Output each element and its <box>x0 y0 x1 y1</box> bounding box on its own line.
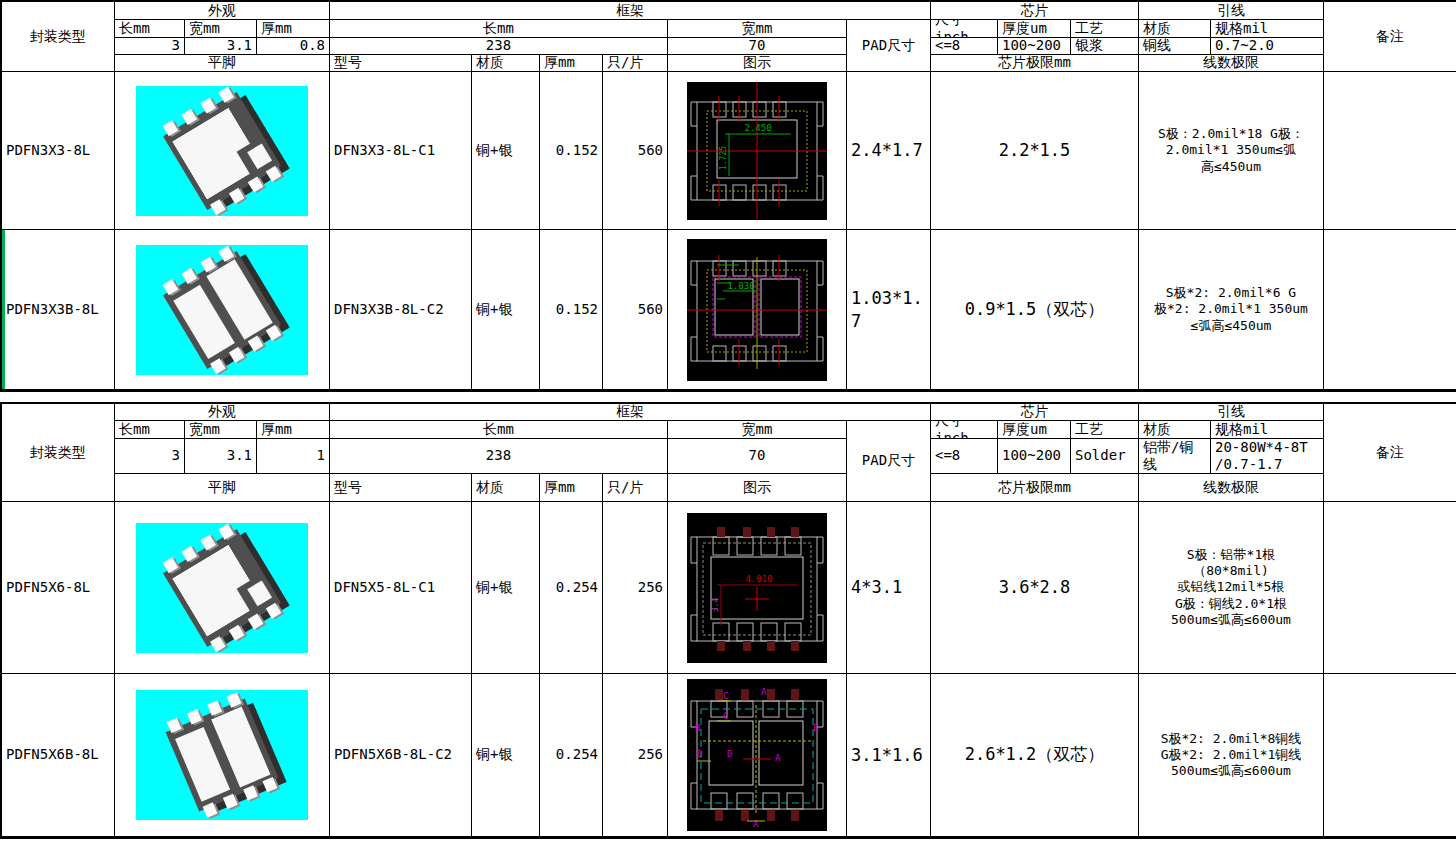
chip-size-label: 尺寸inch <box>931 421 998 439</box>
appearance-width-label: 宽mm <box>185 20 257 38</box>
model-header: 型号 <box>330 55 472 72</box>
diagram-label: B <box>813 723 818 733</box>
remark-header: 备注 <box>1324 2 1456 72</box>
appearance-width-label: 宽mm <box>185 421 257 439</box>
chip-limit-cell: 0.9*1.5（双芯） <box>931 230 1139 390</box>
pad-size-cell: 1.03*1.7 <box>847 230 931 390</box>
frame-length-value: 238 <box>330 38 668 55</box>
chip-process-label: 工艺 <box>1071 421 1139 439</box>
appearance-header: 外观 <box>115 2 330 20</box>
appearance-thick-value: 1 <box>257 439 330 474</box>
material-cell: 铜+银 <box>472 230 540 390</box>
thickness-cell: 0.152 <box>540 72 603 230</box>
model-cell: DFN5X5-8L-C1 <box>330 502 472 674</box>
diagram-label: A <box>761 687 767 697</box>
per-sheet-cell: 256 <box>603 674 668 837</box>
chip-header: 芯片 <box>931 404 1139 421</box>
frame-width-label: 宽mm <box>668 20 847 38</box>
package-photo <box>136 86 308 216</box>
diagram-label: B <box>695 723 700 733</box>
package-photo <box>136 690 308 820</box>
chip-limit-cell: 3.6*2.8 <box>931 502 1139 674</box>
package-type-cell: PDFN5X6-8L <box>2 502 115 674</box>
leadframe-diagram: 1.030 <box>687 239 827 381</box>
chip-thick-label: 厚度um <box>998 421 1071 439</box>
diagram-dim-h: 4.010 <box>745 574 772 584</box>
appearance-length-value: 3 <box>115 439 185 474</box>
leadframe-diagram-cell: C A C B B D D A A <box>668 674 847 837</box>
chip-size-value: <=8 <box>931 439 998 474</box>
per-sheet-cell: 560 <box>603 230 668 390</box>
material-cell: 铜+银 <box>472 502 540 674</box>
diagram-label: C <box>723 691 728 701</box>
leadframe-diagram-cell: 4.010 3.4 <box>668 502 847 674</box>
chip-size-label: 尺寸inch <box>931 20 998 38</box>
diagram-dim-v: 1.725 <box>719 145 728 169</box>
thickness-header: 厚mm <box>540 474 603 502</box>
wire-material-label: 材质 <box>1139 20 1211 38</box>
appearance-length-label: 长mm <box>115 20 185 38</box>
frame-width-value: 70 <box>668 439 847 474</box>
model-cell: PDFN5X6B-8L-C2 <box>330 674 472 837</box>
chip-process-value: 银浆 <box>1071 38 1139 55</box>
thickness-cell: 0.254 <box>540 502 603 674</box>
appearance-header: 外观 <box>115 404 330 421</box>
package-photo-cell <box>115 230 330 390</box>
chip-limit-header: 芯片极限mm <box>931 55 1139 72</box>
wire-header: 引线 <box>1139 404 1324 421</box>
frame-length-value: 238 <box>330 439 668 474</box>
chip-process-label: 工艺 <box>1071 20 1139 38</box>
leadframe-diagram: 2.450 1.725 <box>687 82 827 220</box>
wire-limit-cell: S极*2: 2.0mil*8铜线 G极*2: 2.0mil*1铜线 500um≤… <box>1139 674 1324 837</box>
wire-spec-label: 规格mil <box>1211 20 1324 38</box>
chip-thick-value: 100~200 <box>998 38 1071 55</box>
frame-width-label: 宽mm <box>668 421 847 439</box>
pad-size-header: PAD尺寸 <box>847 421 931 502</box>
remark-cell <box>1324 502 1456 674</box>
chip-limit-cell: 2.6*1.2（双芯） <box>931 674 1139 837</box>
chip-thick-label: 厚度um <box>998 20 1071 38</box>
package-photo-cell <box>115 72 330 230</box>
model-cell: DFN3X3B-8L-C2 <box>330 230 472 390</box>
pad-size-header: PAD尺寸 <box>847 20 931 72</box>
appearance-thick-value: 0.8 <box>257 38 330 55</box>
diagram-label: C <box>723 711 728 721</box>
remark-cell <box>1324 230 1456 390</box>
remark-header: 备注 <box>1324 404 1456 502</box>
per-sheet-header: 只/片 <box>603 474 668 502</box>
thickness-cell: 0.152 <box>540 230 603 390</box>
wire-spec-value: 20-80W*4-8T /0.7-1.7 <box>1211 439 1324 474</box>
diagram-label: D <box>697 749 702 759</box>
leadframe-diagram: 4.010 3.4 <box>687 513 827 663</box>
material-header: 材质 <box>472 474 540 502</box>
package-type-cell: PDFN5X6B-8L <box>2 674 115 837</box>
frame-header: 框架 <box>330 404 931 421</box>
frame-header: 框架 <box>330 2 931 20</box>
diagram-dim-v: 3.4 <box>711 597 720 612</box>
thickness-header: 厚mm <box>540 55 603 72</box>
diagram-header: 图示 <box>668 55 847 72</box>
package-type-header: 封装类型 <box>2 404 115 502</box>
chip-limit-cell: 2.2*1.5 <box>931 72 1139 230</box>
chip-size-value: <=8 <box>931 38 998 55</box>
frame-length-label: 长mm <box>330 421 668 439</box>
per-sheet-header: 只/片 <box>603 55 668 72</box>
flat-foot-header: 平脚 <box>115 474 330 502</box>
package-type-cell: PDFN3X3B-8L <box>2 230 115 390</box>
remark-cell <box>1324 72 1456 230</box>
wire-limit-cell: S极：2.0mil*18 G极： 2.0mil*1 350um≤弧 高≤450u… <box>1139 72 1324 230</box>
package-spec-table-1: 封装类型 外观 框架 芯片 引线 备注 长mm 宽mm 厚mm 长mm 宽mm … <box>0 0 1456 392</box>
pad-size-cell: 3.1*1.6 <box>847 674 931 837</box>
leadframe-diagram: C A C B B D D A A <box>687 679 827 831</box>
wire-spec-value: 0.7~2.0 <box>1211 38 1324 55</box>
sheet-bottom-margin <box>0 839 1456 847</box>
package-type-header: 封装类型 <box>2 2 115 72</box>
model-header: 型号 <box>330 474 472 502</box>
chip-limit-header: 芯片极限mm <box>931 474 1139 502</box>
chip-process-value: Solder <box>1071 439 1139 474</box>
material-cell: 铜+银 <box>472 72 540 230</box>
wire-material-value: 铜线 <box>1139 38 1211 55</box>
frame-width-value: 70 <box>668 38 847 55</box>
leadframe-diagram-cell: 1.030 <box>668 230 847 390</box>
wire-limit-cell: S极*2: 2.0mil*6 G 极*2: 2.0mil*1 350um ≤弧高… <box>1139 230 1324 390</box>
material-cell: 铜+银 <box>472 674 540 837</box>
wire-limit-cell: S极：铝带*1根 （80*8mil) 或铝线12mil*5根 G极：铜线2.0*… <box>1139 502 1324 674</box>
package-photo-cell <box>115 674 330 837</box>
appearance-length-label: 长mm <box>115 421 185 439</box>
wire-material-value: 铝带/铜线 <box>1139 439 1211 474</box>
package-type-cell: PDFN3X3-8L <box>2 72 115 230</box>
per-sheet-cell: 256 <box>603 502 668 674</box>
appearance-width-value: 3.1 <box>185 38 257 55</box>
appearance-width-value: 3.1 <box>185 439 257 474</box>
diagram-dim-h: 2.450 <box>744 123 771 133</box>
wire-limit-header: 线数极限 <box>1139 474 1324 502</box>
model-cell: DFN3X3-8L-C1 <box>330 72 472 230</box>
table-separator <box>0 392 1456 402</box>
wire-limit-header: 线数极限 <box>1139 55 1324 72</box>
pad-size-cell: 2.4*1.7 <box>847 72 931 230</box>
wire-material-label: 材质 <box>1139 421 1211 439</box>
thickness-cell: 0.254 <box>540 674 603 837</box>
leadframe-diagram-cell: 2.450 1.725 <box>668 72 847 230</box>
package-photo <box>136 523 308 653</box>
appearance-length-value: 3 <box>115 38 185 55</box>
package-photo <box>136 245 308 375</box>
package-spec-table-2: 封装类型 外观 框架 芯片 引线 备注 长mm 宽mm 厚mm 长mm 宽mm … <box>0 402 1456 839</box>
diagram-header: 图示 <box>668 474 847 502</box>
diagram-dim-h: 1.030 <box>727 281 754 291</box>
wire-spec-label: 规格mil <box>1211 421 1324 439</box>
remark-cell <box>1324 674 1456 837</box>
package-photo-cell <box>115 502 330 674</box>
per-sheet-cell: 560 <box>603 72 668 230</box>
chip-thick-value: 100~200 <box>998 439 1071 474</box>
frame-length-label: 长mm <box>330 20 668 38</box>
appearance-thick-label: 厚mm <box>257 20 330 38</box>
pad-size-cell: 4*3.1 <box>847 502 931 674</box>
flat-foot-header: 平脚 <box>115 55 330 72</box>
wire-header: 引线 <box>1139 2 1324 20</box>
chip-header: 芯片 <box>931 2 1139 20</box>
diagram-label: A <box>775 753 781 763</box>
diagram-label: D <box>727 749 732 759</box>
material-header: 材质 <box>472 55 540 72</box>
appearance-thick-label: 厚mm <box>257 421 330 439</box>
